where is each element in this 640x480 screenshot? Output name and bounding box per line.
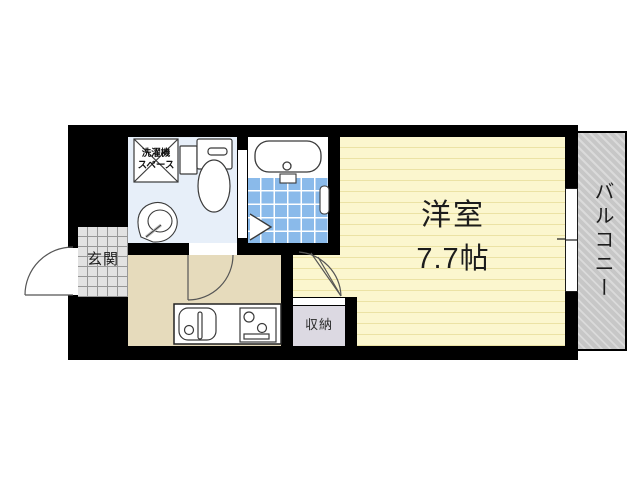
kitchen-sink-icon bbox=[179, 308, 216, 340]
western-room-label: 洋室 bbox=[340, 199, 566, 234]
window-icon bbox=[557, 239, 578, 240]
bathtub-icon bbox=[255, 141, 321, 172]
washbasin-icon bbox=[138, 202, 177, 242]
fixture-lines bbox=[0, 0, 640, 480]
bath-step-icon bbox=[280, 174, 329, 214]
stove-icon bbox=[240, 308, 276, 342]
washer-space-label-line1: 洗濯機 bbox=[134, 148, 178, 159]
western-room-size-label: 7.7帖 bbox=[340, 243, 566, 276]
toilet-icon bbox=[180, 139, 232, 212]
entrance-door-swing-icon bbox=[25, 247, 73, 295]
storage-label: 収納 bbox=[293, 318, 345, 333]
room-door-swing-icon bbox=[299, 252, 341, 296]
floor-plan: バルコニー bbox=[0, 0, 640, 480]
washer-space-label-line2: スペース bbox=[132, 160, 180, 171]
entrance-label: 玄関 bbox=[78, 251, 128, 268]
folding-door-icon bbox=[250, 214, 271, 240]
washroom-door-swing-icon bbox=[188, 255, 233, 300]
